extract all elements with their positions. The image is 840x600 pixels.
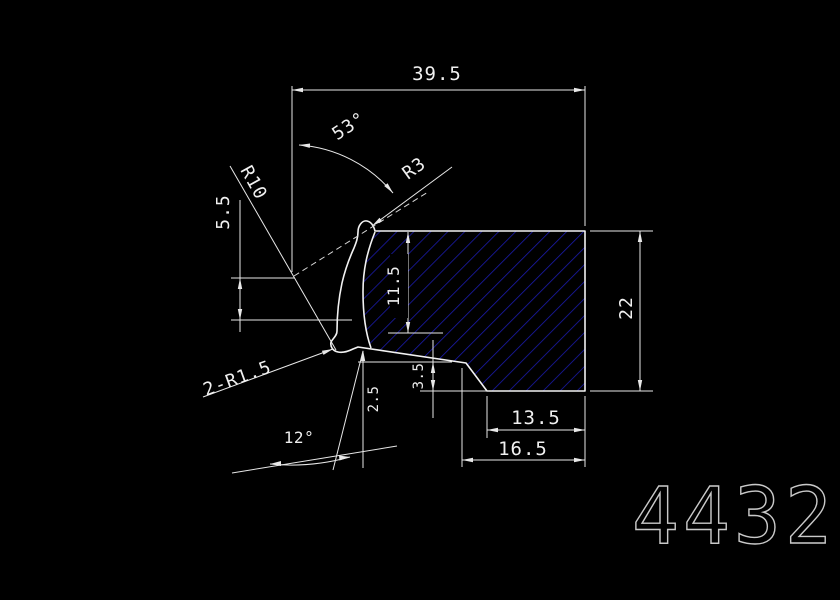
label-radius-r10: R10 <box>236 162 272 203</box>
drawing-number: 4432 <box>632 472 836 562</box>
dim-top-width: 39.5 <box>412 63 462 85</box>
cad-viewport[interactable]: 39.5 53° R10 5.5 R3 11.5 22 2-R1.5 2.5 3… <box>0 0 840 600</box>
dim-bottom-width-outer: 16.5 <box>498 438 548 460</box>
label-radius-r3: R3 <box>399 153 431 184</box>
dim-top-angle: 53° <box>328 108 369 145</box>
dim-left-height: 5.5 <box>213 194 234 230</box>
dim-right-height: 22 <box>616 296 637 320</box>
cad-drawing: 39.5 53° R10 5.5 R3 11.5 22 2-R1.5 2.5 3… <box>0 0 840 600</box>
label-fillets: 2-R1.5 <box>201 357 275 401</box>
dim-lip-step: 2.5 <box>366 386 382 413</box>
dim-bottom-width-inner: 13.5 <box>511 407 561 429</box>
dim-bottom-angle: 12° <box>284 428 314 447</box>
dim-inner-height: 11.5 <box>384 266 403 307</box>
dim-step-height: 3.5 <box>411 363 427 390</box>
